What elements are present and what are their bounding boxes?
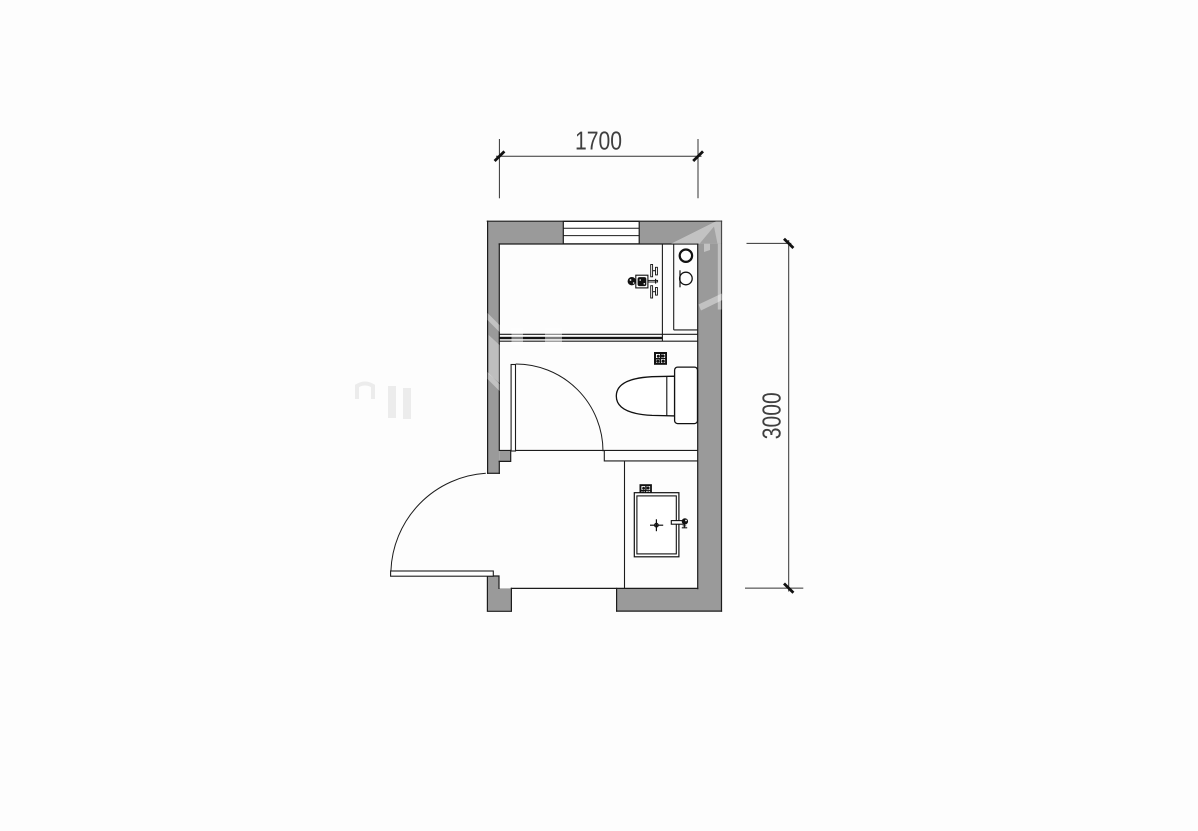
- svg-text:3000: 3000: [757, 392, 787, 439]
- svg-text:1700: 1700: [575, 126, 622, 156]
